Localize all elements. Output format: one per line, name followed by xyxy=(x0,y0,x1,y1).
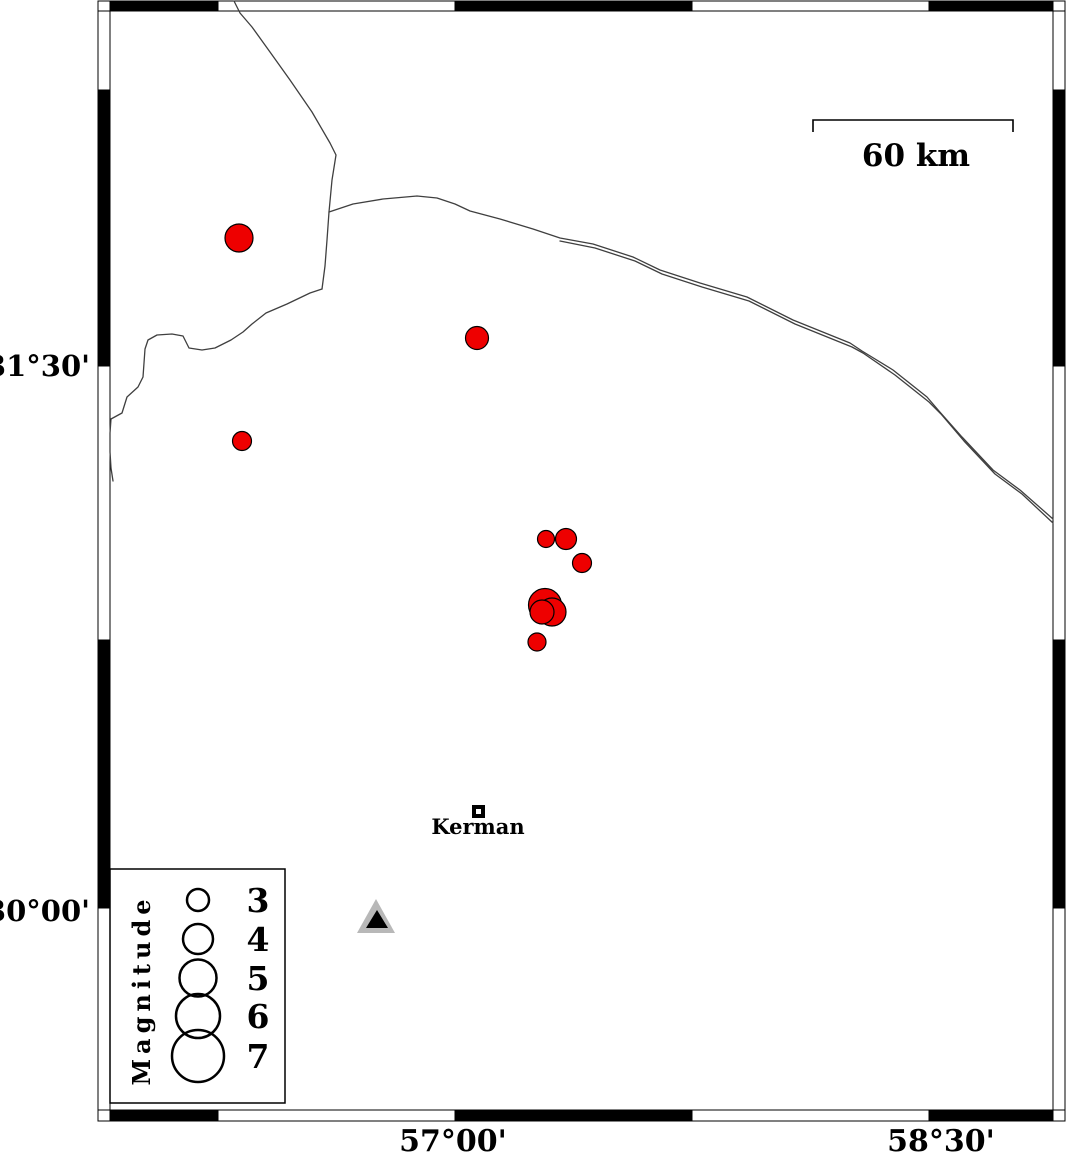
frame-tick-bottom xyxy=(218,1110,455,1121)
frame-tick-left xyxy=(98,640,110,908)
earthquake-circle xyxy=(556,529,577,550)
frame-tick-bottom xyxy=(929,1110,1053,1121)
map-canvas: Kerman 60 km 31°30'30°00'57°00'58°30' Ma… xyxy=(0,0,1066,1156)
earthquake-markers xyxy=(225,224,592,651)
scale-bar: 60 km xyxy=(813,120,1013,174)
city-marker-group: Kerman xyxy=(431,807,524,839)
legend-magnitude-value: 5 xyxy=(247,959,270,998)
frame-tick-right xyxy=(1053,366,1065,640)
boundary-lines xyxy=(110,1,1053,523)
frame-tick-top xyxy=(929,1,1053,11)
frame-corner xyxy=(98,1110,110,1121)
frame-corner xyxy=(1053,1,1065,11)
frame-corner xyxy=(98,1,110,11)
legend-title: Magnitude xyxy=(127,894,156,1085)
seismicity-map: Kerman 60 km 31°30'30°00'57°00'58°30' Ma… xyxy=(0,0,1066,1156)
legend-magnitude-value: 4 xyxy=(247,920,270,959)
station-marker xyxy=(357,899,395,933)
frame-tick-top xyxy=(218,1,455,11)
scale-bar-bracket xyxy=(813,120,1013,132)
earthquake-circle xyxy=(573,554,592,573)
frame-corner xyxy=(1053,1110,1065,1121)
frame-tick-top xyxy=(110,1,218,11)
earthquake-circle xyxy=(225,224,253,252)
frame-tick-right xyxy=(1053,11,1065,90)
axis-label-latitude: 30°00' xyxy=(0,894,90,928)
boundary-west xyxy=(110,289,322,481)
frame-tick-bottom xyxy=(692,1110,929,1121)
frame-tick-left xyxy=(98,11,110,90)
city-label: Kerman xyxy=(431,814,524,839)
legend-magnitude-value: 7 xyxy=(247,1037,270,1076)
earthquake-circle xyxy=(528,633,546,651)
boundary-east-2 xyxy=(560,241,1053,523)
earthquake-circle xyxy=(538,531,555,548)
axis-label-latitude: 31°30' xyxy=(0,349,90,383)
legend-magnitude-value: 3 xyxy=(247,881,270,920)
frame-tick-right xyxy=(1053,908,1065,1110)
earthquake-circle xyxy=(530,600,554,624)
frame-tick-top xyxy=(692,1,929,11)
frame-tick-left xyxy=(98,90,110,366)
legend-magnitude-value: 6 xyxy=(247,997,270,1036)
axis-label-longitude: 58°30' xyxy=(887,1124,995,1156)
frame-tick-top xyxy=(455,1,692,11)
frame-tick-left xyxy=(98,366,110,640)
earthquake-circle xyxy=(466,327,489,350)
frame-tick-bottom xyxy=(110,1110,218,1121)
frame-tick-bottom xyxy=(455,1110,692,1121)
frame-tick-right xyxy=(1053,640,1065,908)
magnitude-legend: Magnitude 34567 xyxy=(110,869,285,1103)
earthquake-circle xyxy=(233,432,252,451)
frame-tick-right xyxy=(1053,90,1065,366)
axis-label-longitude: 57°00' xyxy=(399,1124,507,1156)
boundary-east-1 xyxy=(329,196,1053,519)
frame-tick-left xyxy=(98,908,110,1110)
scale-bar-label: 60 km xyxy=(862,138,970,174)
